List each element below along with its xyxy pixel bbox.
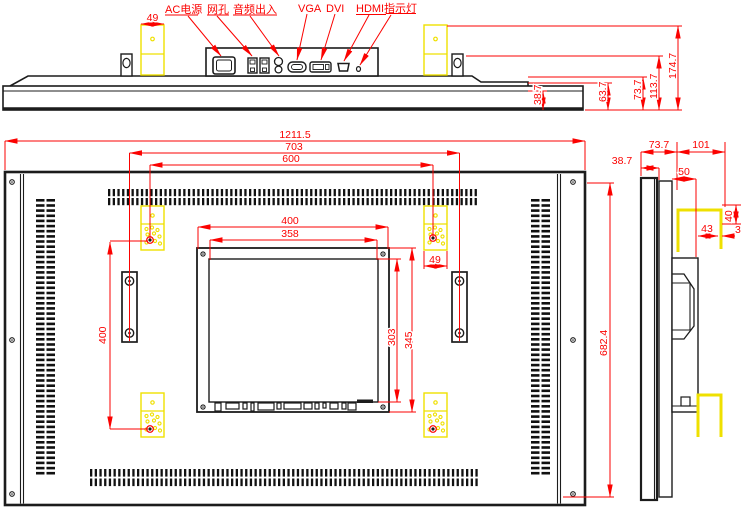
wall-bracket-top-profile [678, 210, 721, 252]
top-view-body [3, 76, 583, 110]
dim-hook-height: 113.7 [648, 73, 660, 99]
dim-mount-spacing-v: 400 [97, 326, 109, 344]
engineering-drawing: AC电源 网孔 音频出入 VGA DVI HDMI 指示灯 49 [0, 0, 748, 509]
dim-step-depth: 63.7 [597, 81, 609, 102]
dim-overall-height: 682.4 [598, 330, 610, 356]
dim-bracket-leg: 40 [723, 210, 735, 222]
hdmi-label: HDMI [356, 3, 384, 15]
lcd-module [197, 248, 389, 412]
dim-bracket-height: 174.7 [667, 53, 679, 79]
dim-overall-width: 1211.5 [279, 129, 310, 141]
dim-side-body-depth: 73.7 [649, 139, 670, 151]
mount-hook-right [452, 54, 463, 76]
side-back-box [672, 258, 698, 412]
dim-module-height: 345 [403, 331, 415, 349]
dim-bracket-width-top: 49 [147, 12, 159, 24]
dim-opening-width: 358 [281, 228, 299, 240]
top-view: AC电源 网孔 音频出入 VGA DVI HDMI 指示灯 49 [3, 1, 682, 110]
dim-hook-spacing: 703 [285, 141, 303, 153]
dim-gap: 3 [735, 224, 741, 236]
rear-view: 1211.5 703 600 400 358 49 400 [5, 129, 614, 505]
dim-side-bezel-depth: 38.7 [612, 155, 633, 167]
port-panel [206, 48, 378, 76]
side-panel-front [641, 178, 657, 500]
dim-mount-spacing-h: 600 [282, 153, 300, 165]
dim-body-depth: 73.7 [632, 79, 644, 100]
mount-hook-left [121, 54, 132, 76]
ac-power-label: AC电源 [165, 2, 202, 16]
mount-bracket-top-left [141, 25, 164, 75]
side-panel-rear [659, 181, 672, 497]
dim-module-width: 400 [281, 215, 299, 227]
audio-label: 音频出入 [233, 2, 277, 16]
dim-box-depth: 50 [678, 166, 690, 178]
lan-label: 网孔 [207, 3, 229, 16]
dim-bracket-width-side: 43 [701, 223, 713, 235]
indicator-label: 指示灯 [384, 1, 417, 15]
wall-bracket-bottom-profile [698, 395, 721, 437]
dim-bracket-width-rear: 49 [429, 254, 441, 266]
dim-bezel-depth: 38.7 [532, 84, 544, 105]
vga-label: VGA [298, 3, 322, 15]
mount-bracket-top-right [424, 25, 447, 75]
dim-bracket-offset: 101 [692, 139, 710, 151]
dim-opening-height: 303 [386, 328, 398, 346]
dvi-label: DVI [326, 3, 344, 15]
side-view: 73.7 101 38.7 50 40 43 3 [612, 139, 741, 500]
